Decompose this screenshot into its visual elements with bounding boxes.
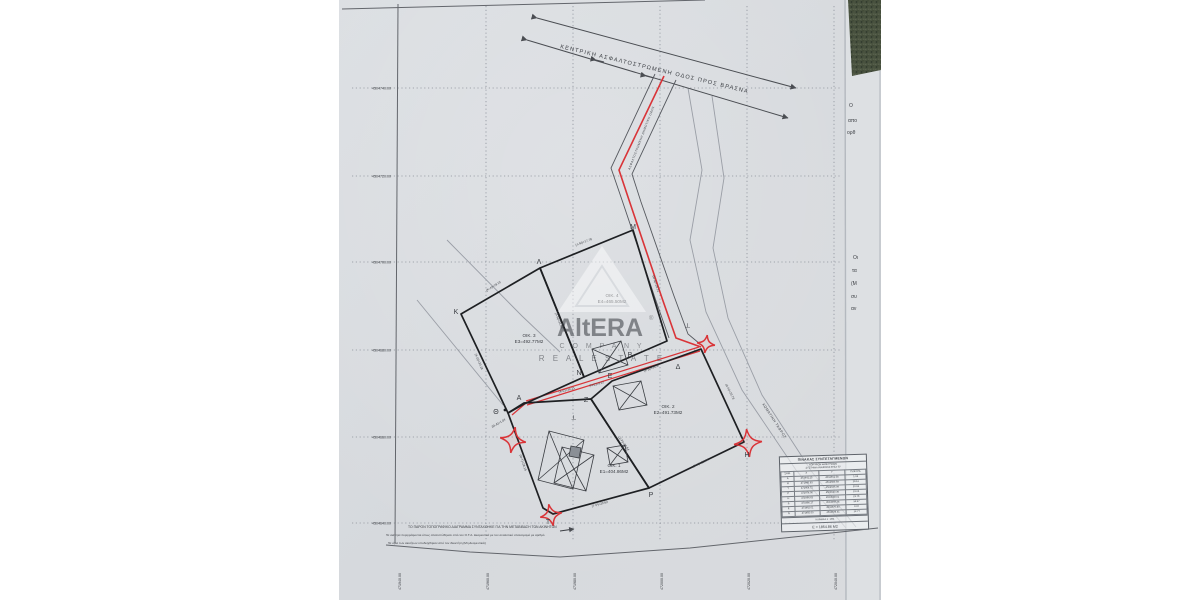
vertex-label: Ζ	[584, 397, 589, 404]
cutoff-text: Ο	[849, 103, 853, 109]
x-axis-label: 472000.00	[660, 573, 664, 590]
vertex-label: Θ	[493, 409, 499, 416]
vertex-label: Ν	[576, 370, 581, 377]
parcel-area: Ε1=404.86Μ2	[600, 469, 629, 474]
x-axis-label: 471940.00	[398, 573, 402, 590]
watermark-company: C O M P A N Y	[559, 343, 644, 350]
survey-tick-mark: ⊢	[685, 323, 692, 328]
parcel-area: Ε2=491.73Μ2	[654, 410, 683, 415]
y-axis-label: 4504720.00	[372, 175, 391, 179]
cutoff-text: Οι	[853, 255, 858, 261]
parcel-area: Ε3=492.77Μ2	[515, 339, 544, 344]
note-line-3: Τα όρια των ακινήτων υποδείχθηκαν από το…	[388, 541, 486, 545]
watermark-brand: AltERA	[557, 314, 643, 342]
survey-tick-mark: ⊢	[571, 415, 578, 420]
vertex-label: Λ	[537, 259, 542, 266]
survey-map-photo: 4504740.00 4504720.00 4504700.00 4504680…	[0, 0, 1200, 600]
y-axis-label: 4504640.00	[372, 522, 391, 526]
x-axis-label: 471980.00	[573, 573, 577, 590]
vertex-label: Δ	[676, 364, 681, 371]
cutoff-text: αν	[851, 306, 857, 312]
x-axis-label: 472040.00	[834, 573, 838, 590]
watermark-tagline: R E A L E S T A T E	[539, 354, 665, 363]
y-axis-label: 4504680.00	[372, 349, 391, 353]
building-annex	[569, 446, 581, 458]
parcel-id: ΟΙΚ. 1	[607, 463, 620, 468]
y-axis-label: 4504660.00	[372, 436, 391, 440]
paper-right-edge	[879, 0, 881, 600]
cutoff-text: συ	[851, 294, 857, 300]
vertex-label: Η	[744, 452, 749, 459]
watermark-reg-icon: ®	[649, 315, 654, 322]
table-total-area: Ε = 1854.86 Μ2	[782, 521, 868, 532]
vegetation-photo-fragment	[848, 0, 881, 76]
cutoff-text: ορθ	[847, 130, 856, 136]
vertex-label: Κ	[454, 309, 459, 316]
x-axis-label: 471960.00	[486, 573, 490, 590]
vertex-theta-point	[504, 409, 507, 412]
cutoff-text: (Μ	[851, 281, 857, 287]
y-axis-label: 4504740.00	[372, 87, 391, 91]
vertex-label: Ε	[608, 373, 613, 380]
vertex-label: Α	[517, 395, 522, 402]
parcel-id: ΟΙΚ. 2	[661, 404, 674, 409]
cutoff-text: τα	[852, 268, 857, 274]
note-line-2: Τα ακίνητα περιγράφονται όπως αποτυπώθηκ…	[386, 533, 545, 537]
screenshot-root: { "watermark": {"brand":"AltERA","reg":"…	[0, 0, 1200, 600]
cutoff-text: απο	[848, 118, 857, 124]
x-axis-label: 472020.00	[747, 573, 751, 590]
parcel-id: ΟΙΚ. 3	[522, 333, 535, 338]
vertex-label: Ρ	[649, 492, 654, 499]
vertex-label: Μ	[630, 224, 636, 231]
y-axis-label: 4504700.00	[372, 261, 391, 265]
coordinates-table: ΠΙΝΑΚΑΣ ΣΥΝΤΕΤΑΓΜΕΝΩΝ ΚΟΡΥΦΩΝ ΙΔΙΟΚΤΗΣΙΩ…	[779, 454, 869, 533]
note-line-1: ΤΟ ΠΑΡΟΝ ΤΟΠΟΓΡΑΦΙΚΟ ΔΙΑΓΡΑΜΜΑ ΣΥΝΤΑΧΘΗΚ…	[408, 525, 557, 529]
